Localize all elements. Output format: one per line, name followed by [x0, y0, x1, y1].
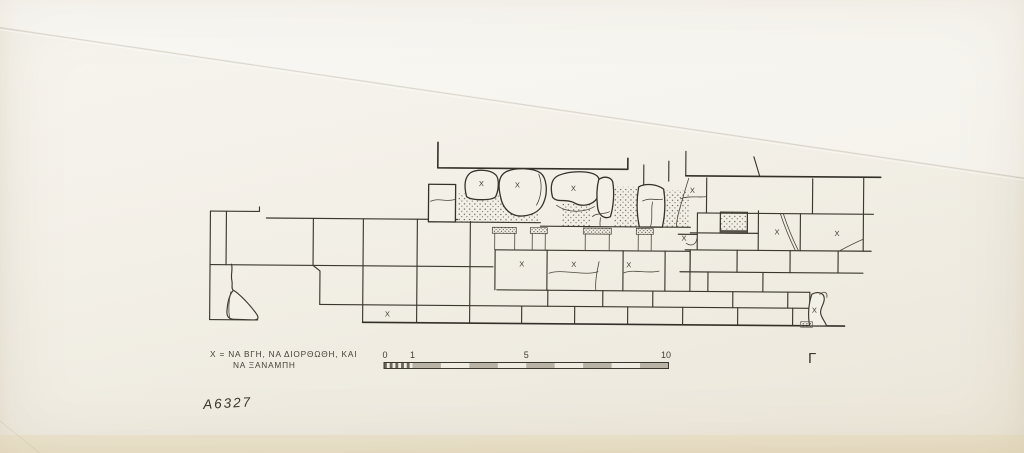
band-top-line	[495, 250, 690, 252]
double-crack	[780, 214, 798, 250]
paper-crease	[0, 0, 1024, 181]
lower-courses	[320, 288, 845, 326]
x-mark-3: X	[571, 184, 577, 193]
stippled-block-base	[720, 230, 747, 233]
joint-313-jog	[313, 218, 321, 304]
elevation-drawing-sheet: XXXXXXXXXXXX 0 1 5 10 Χ = ΝΑ ΒΓΗ, ΝΑ ΔΙΟ…	[0, 0, 1024, 453]
x-mark-7: X	[681, 234, 687, 243]
stipple-patch-3	[614, 187, 638, 227]
scale-unit-cell	[640, 363, 668, 369]
course-line-267	[210, 265, 493, 267]
x-mark-4: X	[690, 186, 696, 195]
foot-strip-4	[636, 228, 653, 234]
x-mark-8: X	[519, 259, 525, 268]
top-joint-slant	[754, 157, 760, 177]
foot-strip-3	[583, 228, 611, 234]
legend-line-2: ΝΑ ΞΑΝΑΜΠΗ	[233, 360, 296, 370]
legend-caption: Χ = ΝΑ ΒΓΗ, ΝΑ ΔΙΟΡΘΩΘΗ, ΚΑΙ ΝΑ ΞΑΝΑΜΠΗ	[210, 349, 357, 370]
course-line-306	[320, 304, 810, 308]
right-top-line	[686, 176, 881, 178]
joint-417	[417, 219, 418, 322]
scale-minor-cell	[390, 363, 393, 369]
bottom-course-joints	[522, 306, 793, 326]
catalog-number: A6327	[202, 394, 253, 412]
block-break-wavy-2	[624, 271, 659, 273]
x-mark-2: X	[515, 180, 521, 189]
pillar-block	[428, 184, 455, 222]
bottom-tint-strip	[0, 435, 1024, 453]
left-top-edge	[210, 207, 259, 212]
scale-unit-cell	[469, 363, 497, 369]
x-mark-5: X	[775, 227, 781, 236]
x-mark-1: X	[479, 179, 485, 188]
right-piece-foot	[801, 322, 813, 328]
block-break-wavy-1	[549, 271, 598, 273]
x-mark-6: X	[835, 229, 841, 238]
scale-label-0: 0	[382, 350, 387, 360]
joint-363	[363, 219, 364, 322]
x-mark-9: X	[571, 260, 577, 269]
left-broken-fragment	[227, 290, 258, 320]
fragment-break-edge	[231, 264, 233, 290]
scale-bar: 0 1 5 10	[382, 350, 671, 369]
corner-mark: Γ	[808, 350, 816, 367]
corner-break-arc	[840, 239, 863, 251]
x-mark-11: X	[385, 309, 391, 318]
ground-line	[363, 322, 845, 326]
scale-label-1: 1	[410, 350, 415, 360]
legend-line-1: Χ = ΝΑ ΒΓΗ, ΝΑ ΔΙΟΡΘΩΘΗ, ΚΑΙ	[210, 349, 357, 359]
scale-minor-cell	[401, 363, 404, 369]
central-block-band	[495, 250, 690, 292]
foot-strip-2	[530, 228, 547, 234]
scale-unit-cell	[526, 363, 554, 369]
right-lower-joints-2	[708, 272, 810, 326]
x-mark-10: X	[626, 260, 632, 269]
x-mark-12: X	[812, 306, 818, 315]
right-wall-section	[678, 176, 881, 328]
scale-bar-cells	[384, 363, 669, 369]
scale-unit-cell	[412, 363, 440, 369]
paper-sheet: XXXXXXXXXXXX 0 1 5 10 Χ = ΝΑ ΒΓΗ, ΝΑ ΔΙΟ…	[0, 0, 1024, 453]
stone-c2	[597, 177, 614, 218]
crease-highlight-area	[0, 0, 1024, 178]
scale-label-5: 5	[524, 350, 529, 360]
feet-strips	[492, 227, 653, 251]
scale-minor-cell	[407, 363, 410, 369]
stipple-patch-2	[562, 202, 590, 226]
scale-label-10: 10	[661, 350, 671, 360]
scale-unit-cell	[583, 363, 611, 369]
block-crack-diagonal	[596, 262, 599, 291]
right-mid-joints	[697, 210, 800, 250]
stone-e	[637, 184, 665, 227]
scale-minor-cell	[395, 363, 398, 369]
left-outer-edge	[210, 211, 211, 319]
joint-470	[470, 222, 471, 323]
band-joints	[495, 250, 690, 292]
stippled-block	[720, 212, 747, 233]
right-course-248	[685, 250, 871, 251]
mid-low-course-joints	[548, 290, 788, 308]
wall-elevation-drawing: XXXXXXXXXXXX	[210, 141, 881, 328]
foot-strip-1	[492, 227, 516, 233]
lintel-outline	[438, 142, 628, 169]
foot-legs	[495, 233, 652, 251]
x-curl-arc	[686, 239, 697, 245]
paper-bottom-edge	[0, 421, 1024, 453]
right-lower-joints-1	[690, 250, 838, 273]
